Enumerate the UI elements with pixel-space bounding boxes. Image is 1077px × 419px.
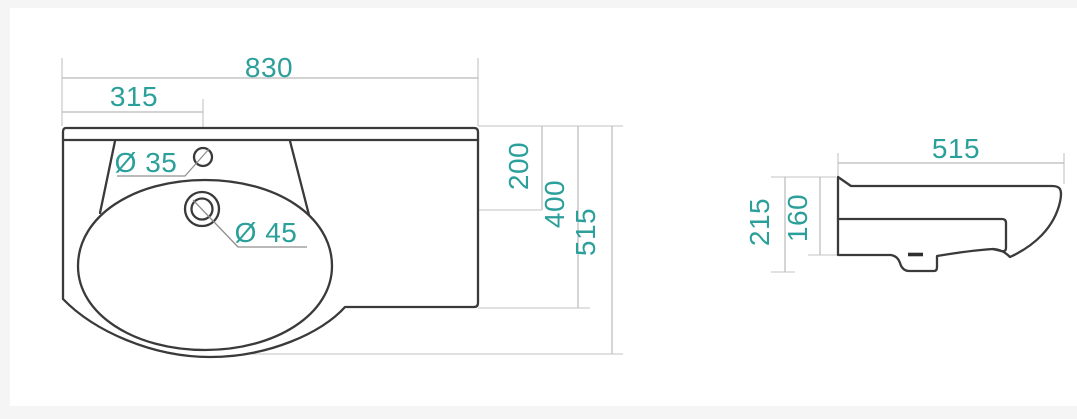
side-profile-body (838, 177, 1061, 271)
dim-830-label: 830 (245, 52, 293, 83)
frame-band-top (0, 0, 1077, 8)
side-outer-outline (838, 177, 1061, 271)
dim-515-depth-label: 515 (570, 208, 601, 256)
dim-400-label: 400 (539, 180, 570, 228)
dim-160-label: 160 (782, 194, 813, 242)
dim-315-label: 315 (110, 81, 158, 112)
dim-drain-hole-label: Ø 45 (235, 217, 298, 248)
side-view: 515 215 160 (744, 133, 1064, 272)
frame-band-left (0, 0, 10, 419)
frame-band-bottom (0, 406, 1077, 419)
plan-view: 830 315 Ø 35 Ø 45 200 400 515 (62, 52, 623, 357)
washbasin-technical-drawing: 830 315 Ø 35 Ø 45 200 400 515 (0, 0, 1077, 419)
dim-215-label: 215 (744, 198, 775, 246)
dim-faucet-hole-label: Ø 35 (115, 147, 178, 178)
dim-200-label: 200 (503, 142, 534, 190)
technical-drawing-page: 830 315 Ø 35 Ø 45 200 400 515 (0, 0, 1077, 419)
dim-515-side-label: 515 (932, 133, 980, 164)
